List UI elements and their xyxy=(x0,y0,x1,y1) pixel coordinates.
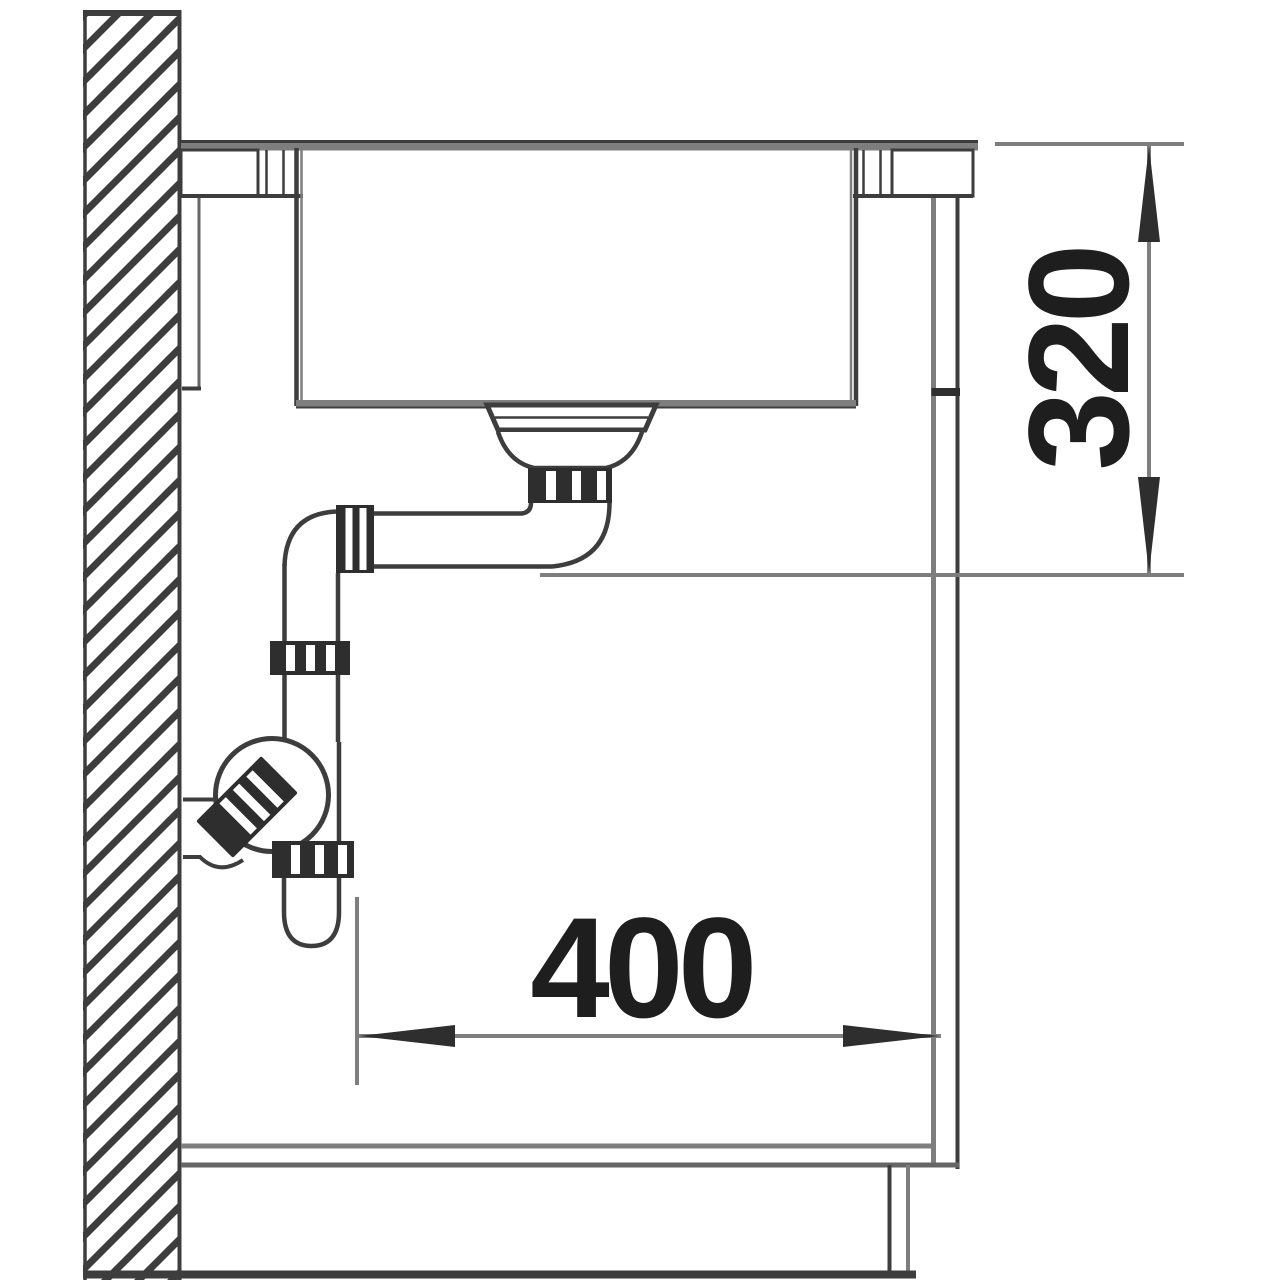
trap-union-nut xyxy=(272,841,354,878)
coupler-slit xyxy=(546,471,556,500)
sink-bowl xyxy=(296,148,856,408)
wall-support-batten xyxy=(182,198,201,389)
dim-arrow-left xyxy=(359,1025,455,1047)
wall-outlet-bottom-line xyxy=(183,857,243,867)
wall-section xyxy=(83,10,181,1280)
nut-slit xyxy=(286,645,295,671)
drain-assembly xyxy=(372,405,656,567)
dim-label-height: 320 xyxy=(1000,249,1159,471)
technical-drawing-page: Sink installation side cross-section tec… xyxy=(0,0,1280,1280)
wall-hatch-fill xyxy=(83,10,181,1280)
countertop-left-hatch-block xyxy=(181,150,258,196)
dim-arrow-up xyxy=(1138,146,1160,242)
coupler-slit xyxy=(597,471,606,500)
nut-slit xyxy=(291,845,300,874)
tailpipe-top-line xyxy=(372,503,531,514)
strainer-cup xyxy=(498,432,642,468)
nut-slit xyxy=(338,845,347,874)
nut-slit xyxy=(360,508,367,570)
nut-slit xyxy=(315,845,324,874)
sink-installation-drawing: Sink installation side cross-section tec… xyxy=(0,0,1280,1280)
countertop-right-hatch-block xyxy=(892,150,973,196)
downpipe-elbow xyxy=(270,505,374,744)
dim-label-depth: 400 xyxy=(530,889,752,1048)
nut-slit xyxy=(346,508,353,570)
nut-slit xyxy=(306,645,315,671)
bottle-trap xyxy=(183,739,354,947)
dimension-height-320: 320 xyxy=(540,144,1184,575)
nut-slit xyxy=(326,645,335,671)
sink-body-bottom-tick xyxy=(932,388,961,396)
drain-threaded-coupler xyxy=(528,468,612,503)
dim-arrow-right xyxy=(843,1025,939,1047)
elbow-slip-nut xyxy=(336,505,374,573)
coupler-slit xyxy=(572,471,581,500)
dimension-depth-400: 400 xyxy=(357,889,941,1085)
dim-arrow-down xyxy=(1138,477,1160,573)
downpipe-union-nut xyxy=(270,641,350,675)
nut-body xyxy=(336,505,374,573)
elbow-outer-arc xyxy=(285,512,337,567)
base-cabinet xyxy=(83,196,960,1275)
